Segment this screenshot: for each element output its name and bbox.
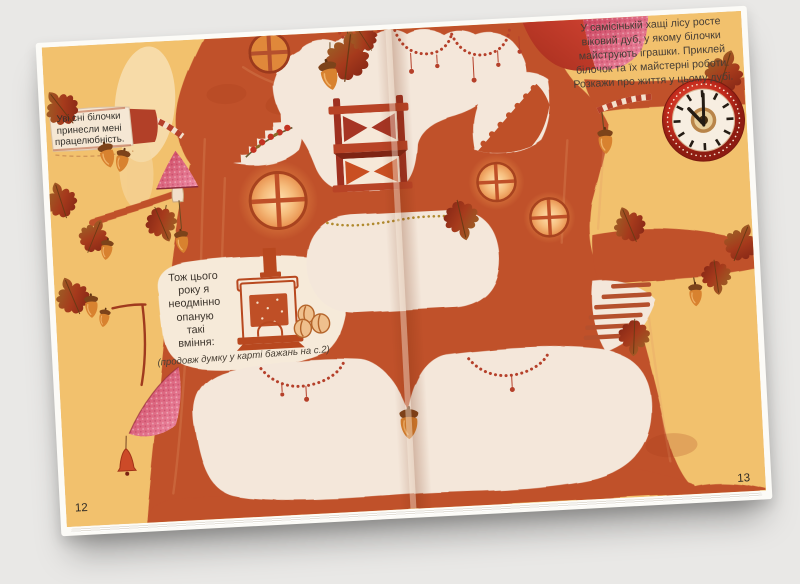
page-number-left: 12 (75, 502, 88, 515)
thought-text: Тож цього року я неодмінно опаную такі в… (150, 269, 240, 352)
page-number-right: 13 (737, 472, 750, 485)
intro-text: У самісінькій хащі лісу росте віковий ду… (557, 14, 746, 93)
tree-illustration (42, 11, 766, 527)
photo-background: У самісінькій хащі лісу росте віковий ду… (0, 0, 800, 584)
banner-text: Уві сні білочки принесли мені працелюбні… (48, 110, 130, 149)
open-book: У самісінькій хащі лісу росте віковий ду… (36, 6, 773, 537)
book-spread: У самісінькій хащі лісу росте віковий ду… (42, 11, 766, 527)
